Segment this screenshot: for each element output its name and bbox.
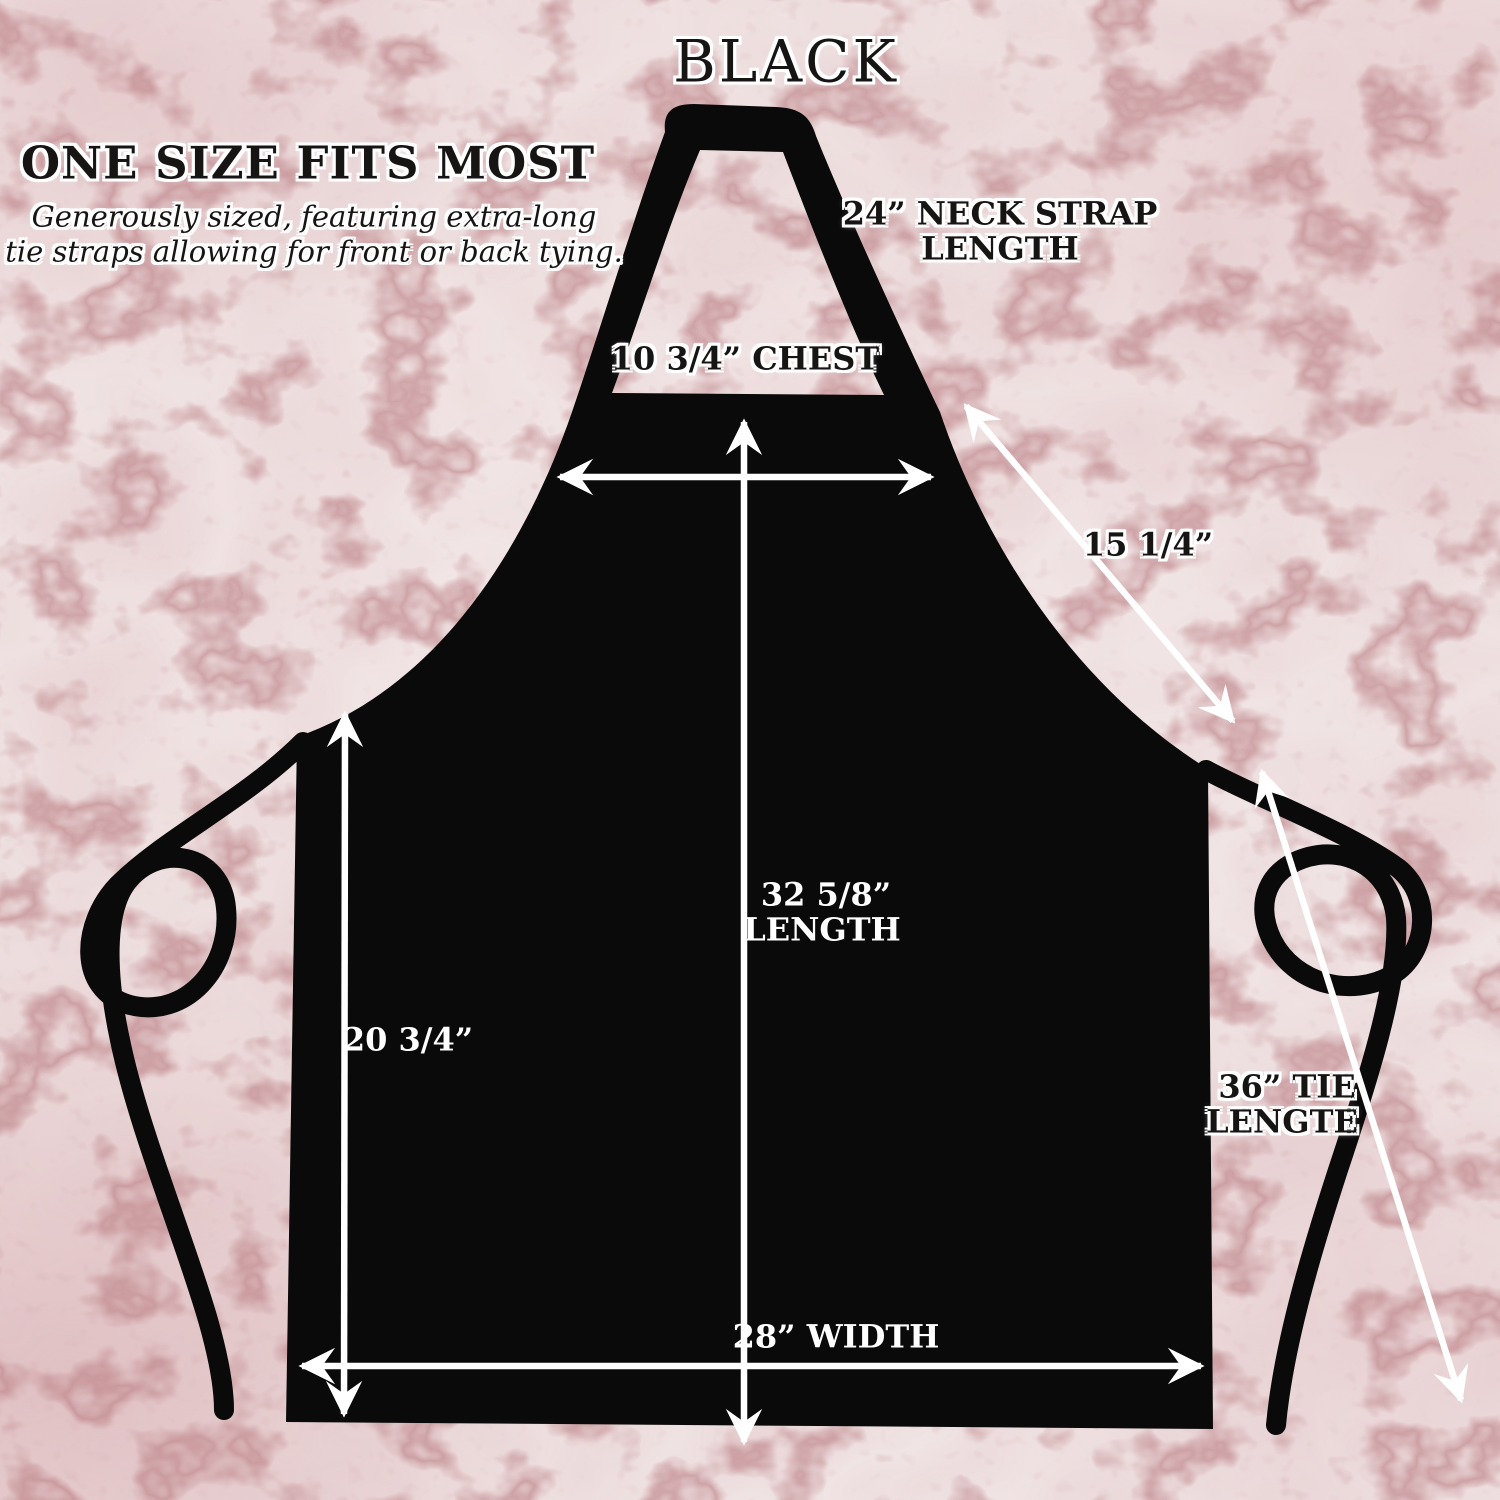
apron-size-infographic: BLACK ONE SIZE FITS MOST Generously size… [0,0,1500,1500]
color-title: BLACK [673,31,899,94]
chest-label: 10 3/4” CHEST [611,342,879,377]
length-label-line1: 32 5/8” [761,878,891,913]
sizing-subtitle-line2: tie straps allowing for front or back ty… [5,236,623,267]
tie-length-label-line1: 36” TIE [1218,1070,1355,1105]
side-length-label: 20 3/4” [343,1023,473,1058]
neck-strap-label-line2: LENGTH [921,232,1079,267]
side-length-arrow [344,714,345,1414]
bottom-width-label: 28” WIDTH [733,1320,940,1355]
left-tie-strap [90,742,303,1410]
neck-strap-label-line1: 24” NECK STRAP [843,197,1158,232]
sizing-subtitle-line1: Generously sized, featuring extra-long [32,201,597,232]
length-label-line2: LENGTH [743,913,901,948]
one-size-heading: ONE SIZE FITS MOST [21,140,595,189]
apron-silhouette [286,104,1213,1429]
tie-length-label-line2: LENGTE [1206,1105,1358,1140]
strap-diagonal-label: 15 1/4” [1083,528,1213,563]
